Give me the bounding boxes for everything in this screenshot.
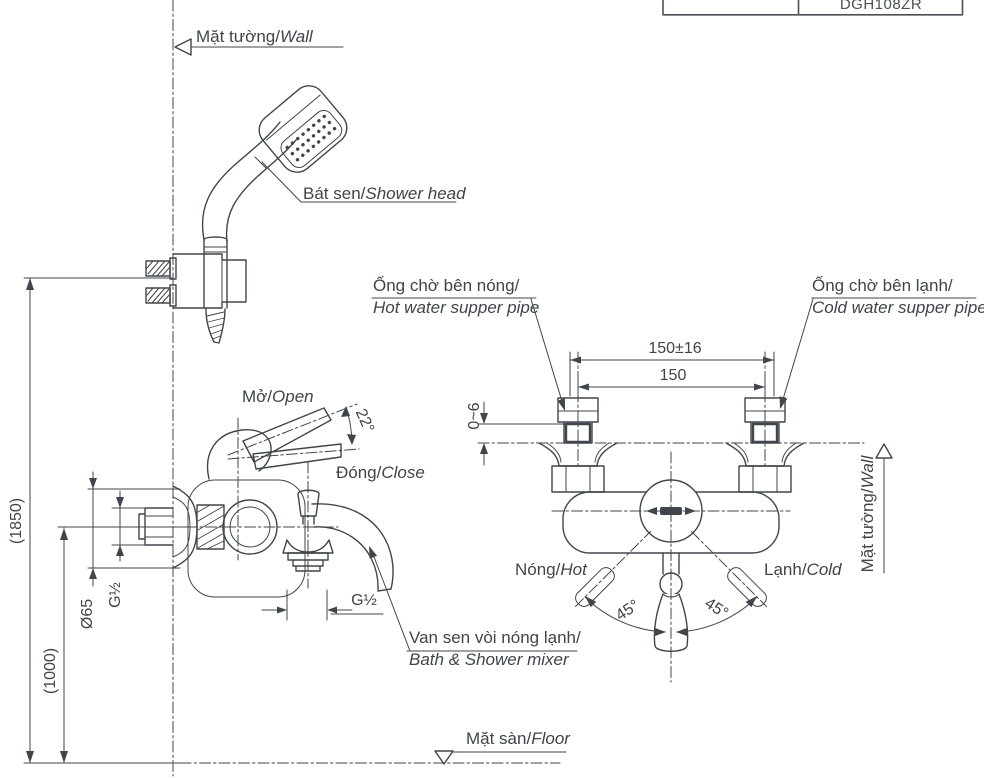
wall-label-top: Mặt tường/Wall	[196, 27, 313, 47]
wall-label-right: Mặt tường/Wall	[858, 452, 878, 576]
dim-pipe-span-tolerance: 150±16	[620, 340, 730, 358]
hot-pipe-label: Ống chờ bên nóng/Hot water supper pipe	[373, 275, 539, 319]
shower-head-label: Bát sen/Shower head	[303, 184, 466, 204]
open-label: Mở/Open	[242, 387, 314, 407]
wall-arrow-right-icon	[876, 444, 892, 458]
hot-side-label: Nóng/Hot	[515, 560, 587, 580]
dim-thread-side: G½	[107, 564, 125, 626]
mixer-label: Van sen vòi nóng lạnh/Bath & Shower mixe…	[409, 627, 581, 671]
dim-mixer-height: (1000)	[42, 640, 60, 702]
cold-side-label: Lạnh/Cold	[764, 560, 842, 580]
dim-thread-bottom: G½	[344, 592, 384, 610]
floor-label: Mặt sàn/Floor	[466, 729, 570, 749]
dim-shower-height: (1850)	[8, 490, 26, 552]
cold-pipe-label: Ống chờ bên lạnh/Cold water supper pipe	[812, 275, 984, 319]
dim-flange-diameter: Ø65	[79, 583, 97, 645]
floor-line	[24, 751, 566, 764]
technical-drawing-page: DGH108ZR Mặt tường/Wall Bát sen/Shower h…	[0, 0, 984, 778]
part-number: DGH108ZR	[799, 0, 963, 13]
close-label: Đóng/Close	[336, 463, 425, 483]
dim-pipe-span: 150	[628, 367, 718, 385]
dim-wall-gap: 0~6	[466, 393, 484, 439]
height-dimensions	[24, 278, 577, 763]
wall-arrow-icon	[175, 39, 191, 55]
floor-symbol-icon	[435, 751, 453, 764]
